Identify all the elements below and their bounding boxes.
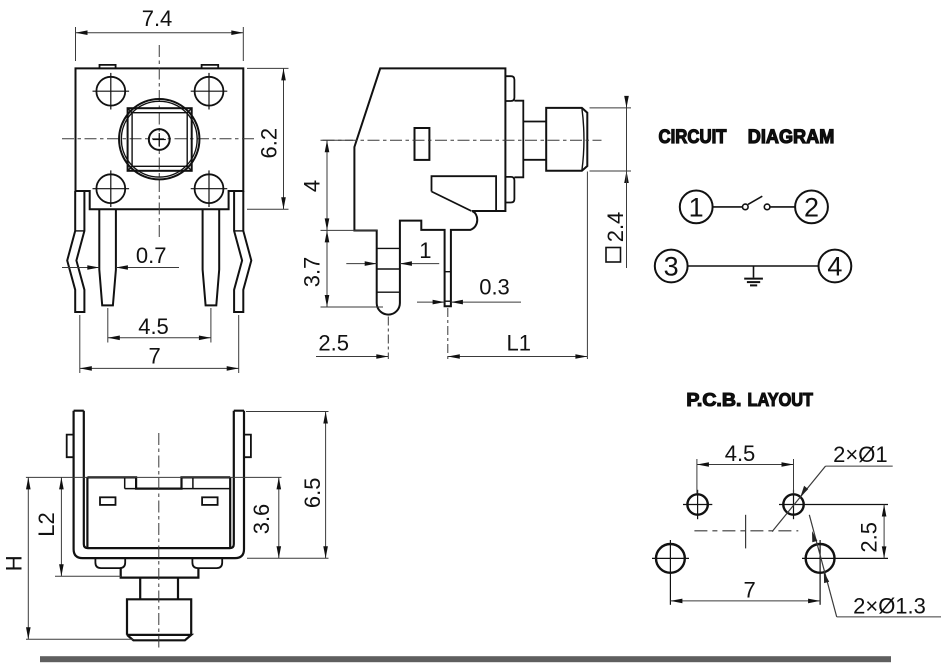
svg-text:2.5: 2.5 bbox=[857, 522, 882, 553]
svg-text:1: 1 bbox=[419, 238, 431, 263]
svg-text:4: 4 bbox=[300, 180, 325, 192]
svg-text:2×Ø1.3: 2×Ø1.3 bbox=[853, 594, 926, 619]
svg-text:7: 7 bbox=[148, 344, 160, 369]
svg-text:3.7: 3.7 bbox=[300, 257, 325, 288]
svg-text:L2: L2 bbox=[34, 512, 59, 536]
svg-text:L1: L1 bbox=[506, 331, 530, 356]
svg-text:0.7: 0.7 bbox=[136, 243, 167, 268]
svg-text:4.5: 4.5 bbox=[138, 314, 169, 339]
svg-text:P.C.B.: P.C.B. bbox=[686, 390, 741, 410]
svg-text:2×Ø1: 2×Ø1 bbox=[833, 442, 887, 467]
svg-text:2: 2 bbox=[804, 193, 819, 223]
svg-text:6.2: 6.2 bbox=[257, 128, 282, 159]
svg-text:3.6: 3.6 bbox=[249, 504, 274, 535]
svg-text:7: 7 bbox=[743, 578, 755, 603]
svg-text:4: 4 bbox=[827, 252, 842, 282]
svg-text:7.4: 7.4 bbox=[142, 6, 173, 31]
svg-text:LAYOUT: LAYOUT bbox=[748, 390, 814, 410]
svg-text:4.5: 4.5 bbox=[725, 441, 756, 466]
svg-text:6.5: 6.5 bbox=[300, 478, 325, 509]
svg-text:3: 3 bbox=[664, 252, 679, 282]
svg-text:0.3: 0.3 bbox=[479, 275, 510, 300]
svg-text:2.4: 2.4 bbox=[603, 212, 628, 243]
svg-text:2.5: 2.5 bbox=[318, 331, 349, 356]
svg-text:CIRCUIT: CIRCUIT bbox=[659, 127, 727, 148]
svg-text:H: H bbox=[1, 555, 26, 571]
svg-text:1: 1 bbox=[689, 193, 704, 223]
svg-text:DIAGRAM: DIAGRAM bbox=[748, 127, 835, 148]
